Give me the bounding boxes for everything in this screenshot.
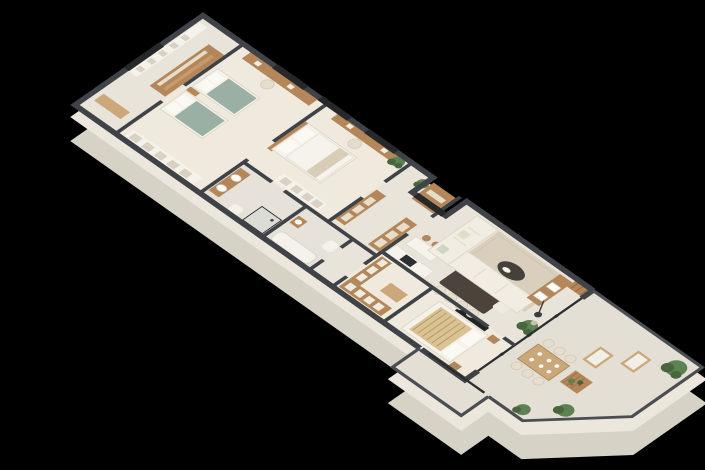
floorplan-svg	[0, 0, 705, 470]
floorplan-render	[0, 0, 705, 470]
iso-plan	[48, 15, 702, 470]
